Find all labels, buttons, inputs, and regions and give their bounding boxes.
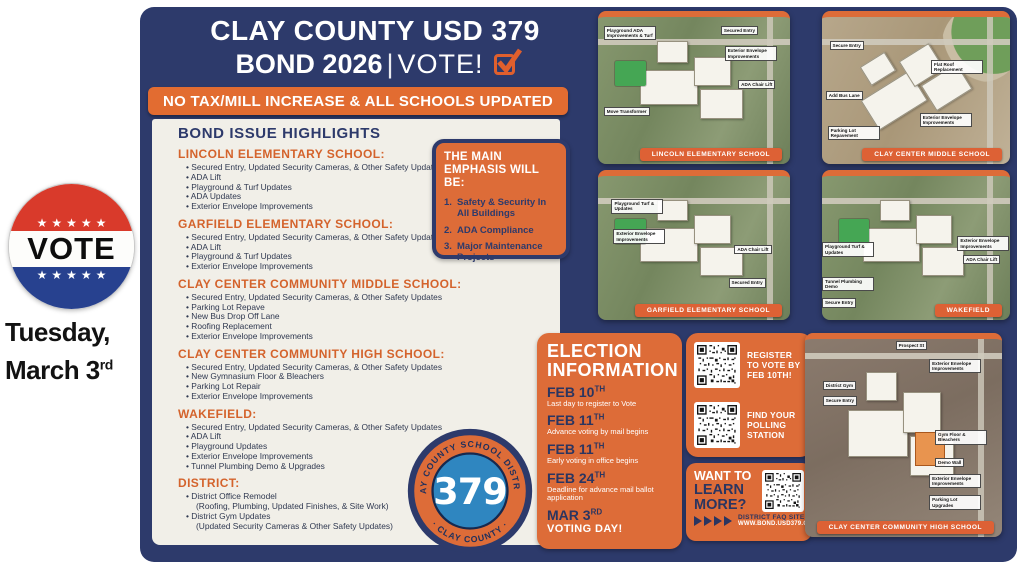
election-date-line1: Tuesday, xyxy=(5,314,141,352)
school-map: Secure EntryFlat Roof ReplacementAdd Bus… xyxy=(822,11,1010,164)
election-entry: FEB 24TH Deadline for advance mail ballo… xyxy=(547,471,672,503)
bond-flyer: ★★★★★ VOTE ★★★★★ Tuesday, March 3rd CLAY… xyxy=(0,0,1024,576)
district-logo: CLAY COUNTY SCHOOL DISTRICT · CLAY COUNT… xyxy=(406,427,534,555)
map-annotation: Exterior Envelope Improvements xyxy=(957,236,1009,251)
election-entry: FEB 11TH Early voting in office begins xyxy=(547,442,672,466)
election-entry: MAR 3RD VOTING DAY! xyxy=(547,508,672,536)
map-annotation: ADA Chair Lift xyxy=(734,245,771,254)
emphasis-item: Safety & Security In All Buildings xyxy=(444,198,558,220)
badge-white-band: VOTE xyxy=(9,231,134,266)
map-label: WAKEFIELD xyxy=(935,304,1002,317)
election-date-day: March 3 xyxy=(5,355,100,385)
emphasis-item: ADA Compliance xyxy=(444,226,558,237)
map-label: CLAY CENTER COMMUNITY HIGH SCHOOL xyxy=(817,521,994,534)
map-annotation: District Gym xyxy=(823,381,856,390)
map-annotation: Secured Entry xyxy=(721,26,758,35)
map-annotation: Flat Roof Replacement xyxy=(931,60,983,75)
election-entry: FEB 10TH Last day to register to Vote xyxy=(547,385,672,409)
election-entry-desc: VOTING DAY! xyxy=(547,523,672,536)
map-annotation: Exterior Envelope Improvements xyxy=(613,229,665,244)
election-entry-date: FEB 10TH xyxy=(547,385,672,399)
logo-number: 379 xyxy=(433,470,507,513)
school-map: Playground Turf & UpdatesExterior Envelo… xyxy=(822,170,1010,320)
election-date-ordinal: rd xyxy=(100,356,113,372)
map-annotation: Playground Turf & Updates xyxy=(611,199,663,214)
map-annotation: Exterior Envelope Improvements xyxy=(929,359,981,374)
map-annotation: Playground Turf & Updates xyxy=(822,242,874,257)
map-annotation: Exterior Envelope Improvements xyxy=(725,46,777,61)
map-label: LINCOLN ELEMENTARY SCHOOL xyxy=(640,148,782,161)
main-panel: CLAY COUNTY USD 379 BOND 2026|VOTE! NO T… xyxy=(140,7,1017,562)
election-entry-date: FEB 11TH xyxy=(547,442,672,456)
map-annotations: Prospect StExterior Envelope Improvement… xyxy=(805,339,1002,537)
emphasis-item: Major Maintenance Projects xyxy=(444,242,558,264)
election-entry-desc: Deadline for advance mail ballot applica… xyxy=(547,486,672,503)
election-title-line1: ELECTION xyxy=(547,342,672,361)
map-annotation: Parking Lot Repavement xyxy=(828,126,880,141)
election-title: ELECTION INFORMATION xyxy=(547,342,672,380)
map-annotations: Playground Turf & UpdatesExterior Envelo… xyxy=(598,176,790,320)
main-emphasis-box: THE MAIN EMPHASIS WILL BE: Safety & Secu… xyxy=(432,139,570,259)
map-annotation: Demo Wall xyxy=(935,458,964,467)
school-map: Playground ADA Improvements & TurfSecure… xyxy=(598,11,790,164)
map-annotation: Exterior Envelope Improvements xyxy=(929,474,981,489)
election-entry: FEB 11TH Advance voting by mail begins xyxy=(547,413,672,437)
map-annotation: ADA Chair Lift xyxy=(738,80,775,89)
map-annotation: Parking Lot Upgrades xyxy=(929,495,981,510)
emphasis-list: Safety & Security In All BuildingsADA Co… xyxy=(444,198,558,265)
election-date-line2: March 3rd xyxy=(5,352,141,390)
map-annotations: Playground ADA Improvements & TurfSecure… xyxy=(598,17,790,164)
badge-blue-band: ★★★★★ xyxy=(9,267,134,309)
map-annotation: Exterior Envelope Improvements xyxy=(920,113,972,128)
map-annotation: Secure Entry xyxy=(830,41,864,50)
map-label: GARFIELD ELEMENTARY SCHOOL xyxy=(635,304,782,317)
stars-icon: ★★★★★ xyxy=(33,269,111,281)
election-entry-date: FEB 24TH xyxy=(547,471,672,485)
stars-icon: ★★★★★ xyxy=(33,217,111,229)
election-entry-desc: Advance voting by mail begins xyxy=(547,428,672,437)
vote-label: VOTE xyxy=(27,233,115,264)
school-map: Prospect StExterior Envelope Improvement… xyxy=(805,333,1002,537)
map-annotation: Secured Entry xyxy=(729,278,766,287)
map-annotation: Playground ADA Improvements & Turf xyxy=(604,26,656,41)
election-title-line2: INFORMATION xyxy=(547,361,672,380)
map-annotation: Tunnel Plumbing Demo xyxy=(822,277,874,292)
map-annotations: Secure EntryFlat Roof ReplacementAdd Bus… xyxy=(822,17,1010,164)
election-entry-date: FEB 11TH xyxy=(547,413,672,427)
map-annotation: Add Bus Lane xyxy=(826,91,863,100)
map-annotations: Playground Turf & UpdatesExterior Envelo… xyxy=(822,176,1010,320)
map-label: CLAY CENTER MIDDLE SCHOOL xyxy=(862,148,1002,161)
election-entry-desc: Last day to register to Vote xyxy=(547,400,672,409)
election-entry-date: MAR 3RD xyxy=(547,508,672,522)
map-annotation: Move Transformer xyxy=(604,107,650,116)
election-date: Tuesday, March 3rd xyxy=(5,314,141,389)
map-annotation: Secure Entry xyxy=(822,298,856,307)
election-info-panel: ELECTION INFORMATION FEB 10TH Last day t… xyxy=(537,333,682,549)
map-annotation: Secure Entry xyxy=(823,396,857,405)
emphasis-title: THE MAIN EMPHASIS WILL BE: xyxy=(444,151,558,191)
vote-badge: ★★★★★ VOTE ★★★★★ xyxy=(8,183,135,310)
map-annotation: Prospect St xyxy=(896,341,928,350)
badge-red-band: ★★★★★ xyxy=(9,184,134,231)
map-annotation: ADA Chair Lift xyxy=(963,255,1000,264)
school-map: Playground Turf & UpdatesExterior Envelo… xyxy=(598,170,790,320)
election-entries: FEB 10TH Last day to register to Vote FE… xyxy=(547,385,672,536)
election-entry-desc: Early voting in office begins xyxy=(547,457,672,466)
map-annotation: Gym Floor & Bleachers xyxy=(935,430,987,445)
